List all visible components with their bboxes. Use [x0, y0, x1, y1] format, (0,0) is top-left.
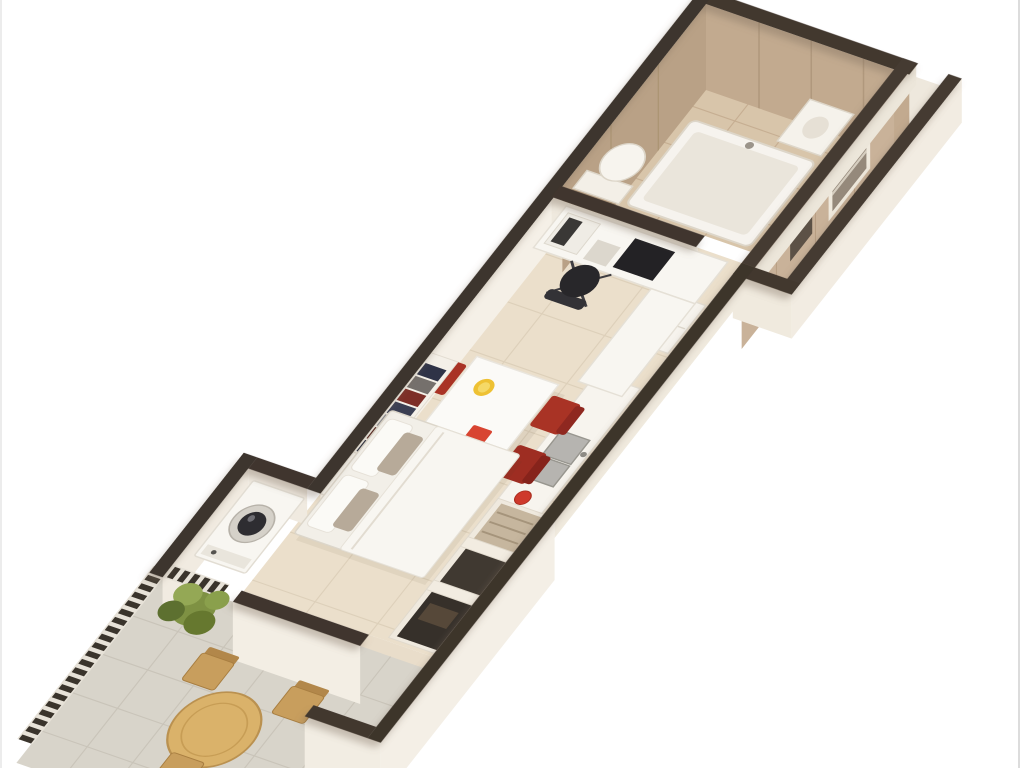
floorplan-canvas — [0, 0, 1024, 768]
image-border-left — [0, 0, 2, 768]
apartment-plan-layer — [10, 0, 989, 768]
floorplan-3d-render — [0, 0, 1024, 768]
image-border-right — [1018, 0, 1020, 768]
